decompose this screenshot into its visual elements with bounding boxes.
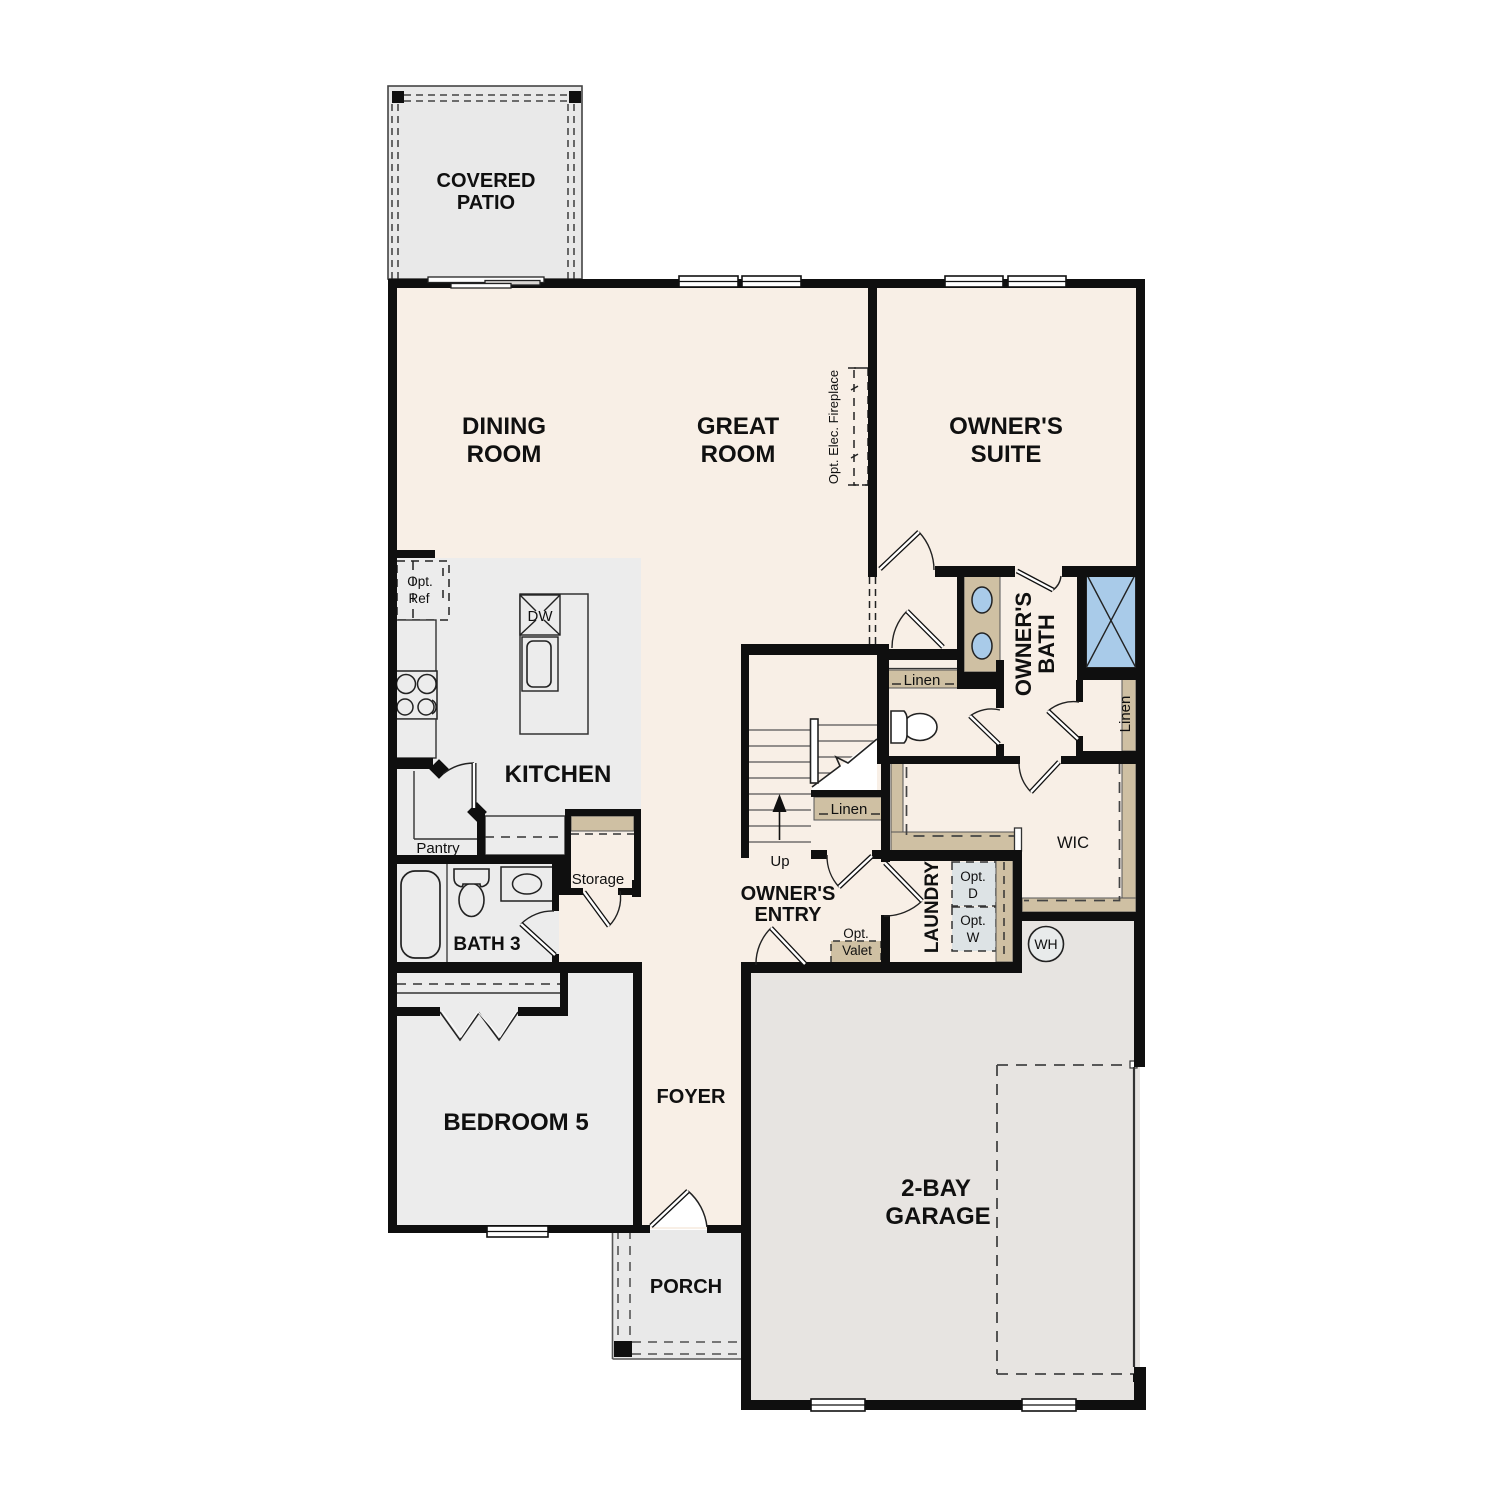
svg-text:WH: WH xyxy=(1034,936,1057,952)
svg-text:LAUNDRY: LAUNDRY xyxy=(922,861,943,954)
svg-text:FOYER: FOYER xyxy=(657,1086,726,1108)
svg-text:DINING: DINING xyxy=(462,413,546,440)
svg-text:GARAGE: GARAGE xyxy=(885,1203,990,1230)
svg-text:COVERED: COVERED xyxy=(437,170,536,192)
svg-text:BATH: BATH xyxy=(1034,614,1059,673)
svg-text:Opt.: Opt. xyxy=(407,574,433,589)
svg-text:W: W xyxy=(967,930,980,945)
svg-text:SUITE: SUITE xyxy=(971,441,1042,468)
svg-text:Storage: Storage xyxy=(572,871,625,888)
svg-text:PORCH: PORCH xyxy=(650,1276,722,1298)
svg-text:Linen: Linen xyxy=(904,672,941,689)
svg-text:Ref: Ref xyxy=(408,591,429,606)
svg-text:Linen: Linen xyxy=(1117,696,1134,733)
svg-text:PATIO: PATIO xyxy=(457,192,515,214)
svg-text:2-BAY: 2-BAY xyxy=(901,1175,971,1202)
svg-text:Opt. Elec. Fireplace: Opt. Elec. Fireplace xyxy=(826,370,841,484)
svg-text:Up: Up xyxy=(770,853,789,870)
svg-text:OWNER'S: OWNER'S xyxy=(949,413,1063,440)
svg-text:Pantry: Pantry xyxy=(416,840,460,857)
svg-text:Linen: Linen xyxy=(831,801,868,818)
svg-text:OWNER'S: OWNER'S xyxy=(741,883,836,905)
svg-text:KITCHEN: KITCHEN xyxy=(505,761,612,788)
svg-text:ENTRY: ENTRY xyxy=(754,904,822,926)
svg-text:Opt.: Opt. xyxy=(960,869,986,884)
svg-text:GREAT: GREAT xyxy=(697,413,780,440)
svg-text:ROOM: ROOM xyxy=(467,441,542,468)
svg-text:BATH 3: BATH 3 xyxy=(453,934,520,955)
svg-text:DW: DW xyxy=(528,608,554,625)
svg-text:OWNER'S: OWNER'S xyxy=(1011,592,1036,696)
svg-text:Opt.: Opt. xyxy=(843,926,869,941)
svg-text:WIC: WIC xyxy=(1057,834,1089,852)
svg-text:BEDROOM 5: BEDROOM 5 xyxy=(443,1109,588,1136)
svg-text:Valet: Valet xyxy=(842,943,872,958)
svg-text:D: D xyxy=(968,886,978,901)
svg-text:ROOM: ROOM xyxy=(701,441,776,468)
svg-text:Opt.: Opt. xyxy=(960,913,986,928)
